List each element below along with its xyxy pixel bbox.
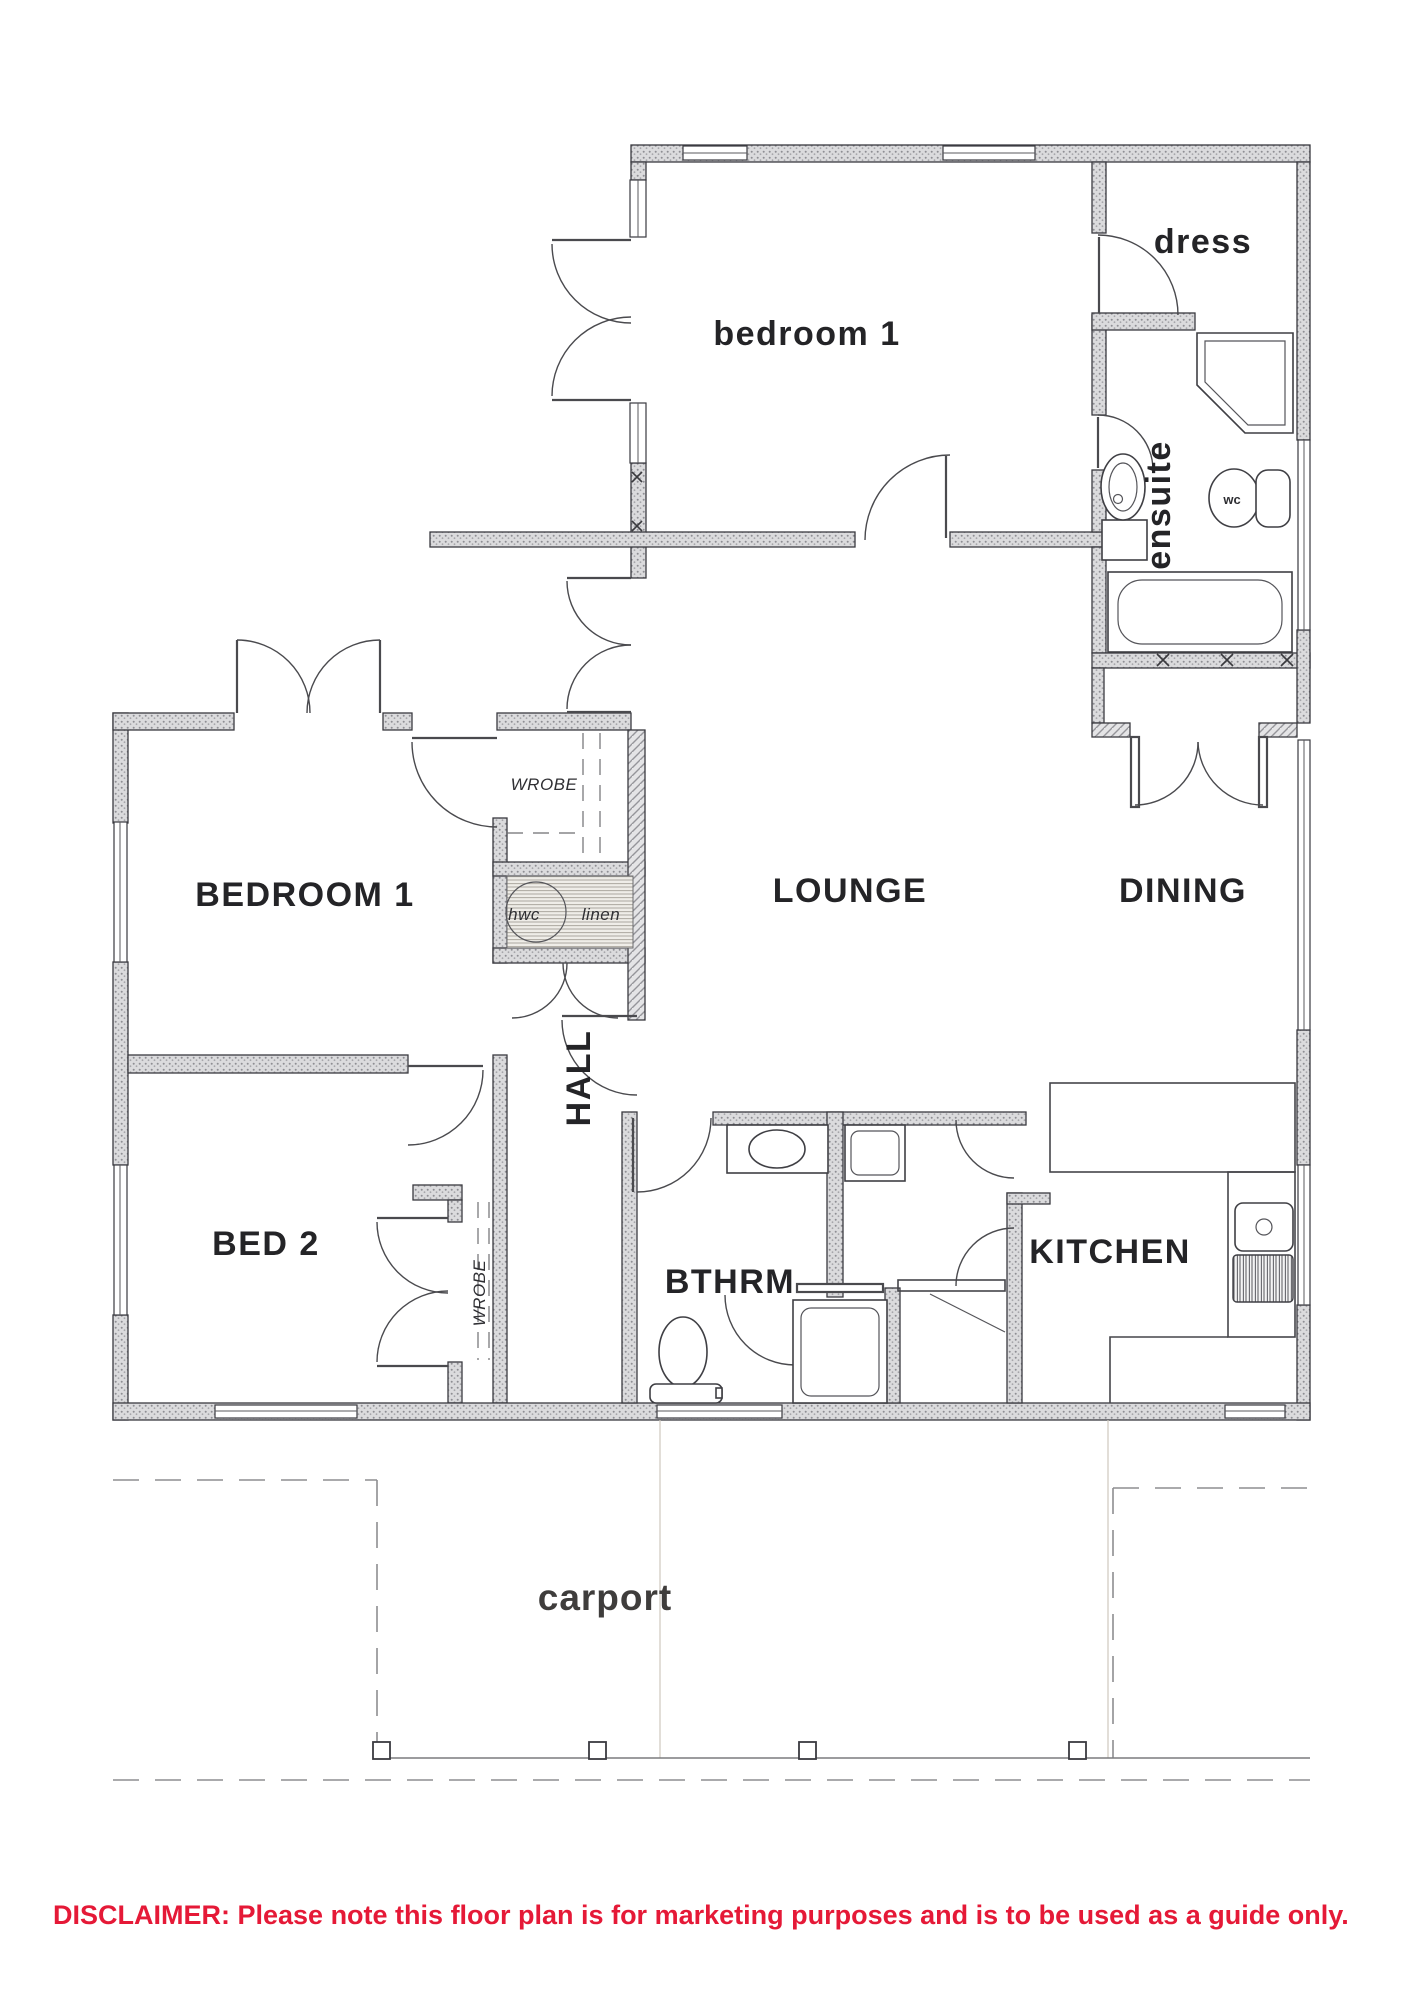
laundry-tub-icon [845,1125,905,1181]
label-carport: carport [538,1577,672,1618]
ensuite-toilet-icon [1209,469,1290,527]
bathroom-basin-icon [727,1125,828,1173]
label-hall: HALL [560,1030,598,1127]
disclaimer-text: DISCLAIMER: Please note this floor plan … [53,1900,1393,1931]
label-kitchen: KITCHEN [1029,1233,1191,1271]
window-right-1 [1298,440,1310,630]
label-dress: dress [1154,223,1252,261]
doors [237,235,1267,1366]
window-west-upper-1 [630,180,646,237]
kitchen-sink-icon [1235,1203,1293,1251]
label-dining: DINING [1119,872,1247,910]
window-top-1 [683,146,747,160]
label-wrobe-bed2: WROBE [470,1259,489,1326]
window-left-1 [114,822,127,962]
label-lounge: LOUNGE [773,872,927,910]
window-bottom-3 [1225,1405,1285,1418]
window-bottom-2 [657,1405,782,1418]
bathroom-toilet-icon [650,1317,722,1403]
label-linen: linen [582,905,620,924]
carport-area [113,1420,1310,1780]
window-right-2 [1298,740,1310,1030]
kitchen-cooktop-icon [1233,1255,1293,1302]
floor-plan-drawing: bedroom 1 dress ensuite wc BEDROOM 1 WRO… [0,0,1414,2000]
ensuite-bath-icon [1108,572,1292,652]
floor-plan-page: bedroom 1 dress ensuite wc BEDROOM 1 WRO… [0,0,1414,2000]
label-bed2: BED 2 [212,1225,320,1263]
window-top-2 [943,146,1035,160]
label-hwc: hwc [508,905,540,924]
window-left-2 [114,1165,127,1315]
window-west-upper-2 [630,403,646,463]
window-bottom-1 [215,1405,357,1418]
label-bathroom: BTHRM [665,1263,795,1301]
bathroom-shower-icon [793,1300,887,1403]
carport-posts [373,1742,1086,1759]
window-right-3 [1298,1165,1310,1305]
label-wrobe-hall: WROBE [511,775,578,794]
label-wc: wc [1222,492,1240,507]
label-bedroom1-upper: bedroom 1 [713,315,900,353]
ensuite-shower-icon [1197,333,1293,433]
laundry-bench [898,1280,1005,1332]
label-bedroom1-main: BEDROOM 1 [195,876,414,914]
label-ensuite: ensuite [1140,440,1178,570]
